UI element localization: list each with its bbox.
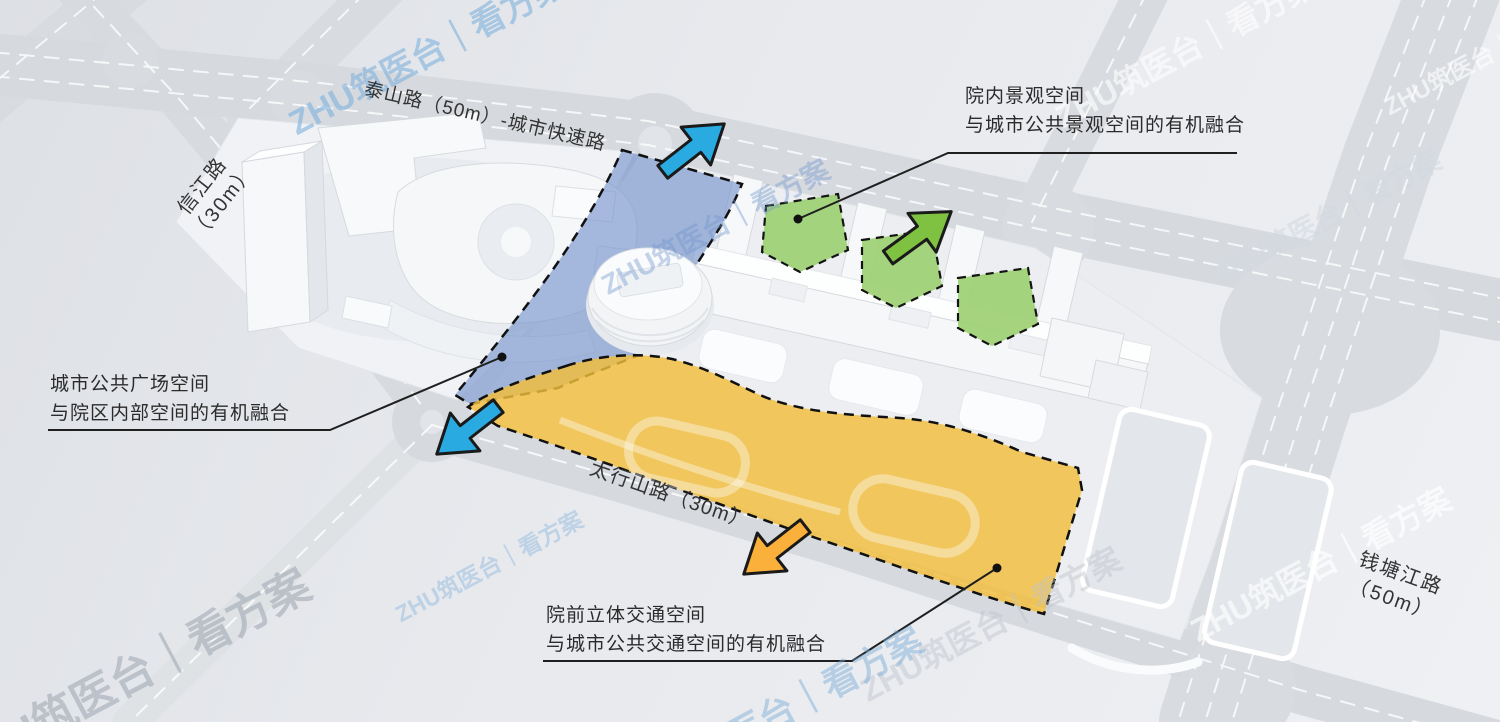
annotation-landscape-line2: 与城市公共景观空间的有机融合 (965, 111, 1245, 140)
annotation-landscape: 院内景观空间 与城市公共景观空间的有机融合 (965, 82, 1245, 140)
annotation-plaza-line2: 与院区内部空间的有机融合 (50, 399, 290, 428)
annotation-traffic-line1: 院前立体交通空间 (546, 601, 826, 630)
annotation-traffic-line2: 与城市公共交通空间的有机融合 (546, 630, 826, 659)
annotation-traffic: 院前立体交通空间 与城市公共交通空间的有机融合 (546, 601, 826, 659)
annotation-plaza-line1: 城市公共广场空间 (50, 370, 290, 399)
site-analysis-diagram: 泰山路（50m）-城市快速路 信江路 （30m） 太行山路（30m） 钱塘江路 … (0, 0, 1500, 722)
annotation-landscape-line1: 院内景观空间 (965, 82, 1245, 111)
annotation-plaza: 城市公共广场空间 与院区内部空间的有机融合 (50, 370, 290, 428)
